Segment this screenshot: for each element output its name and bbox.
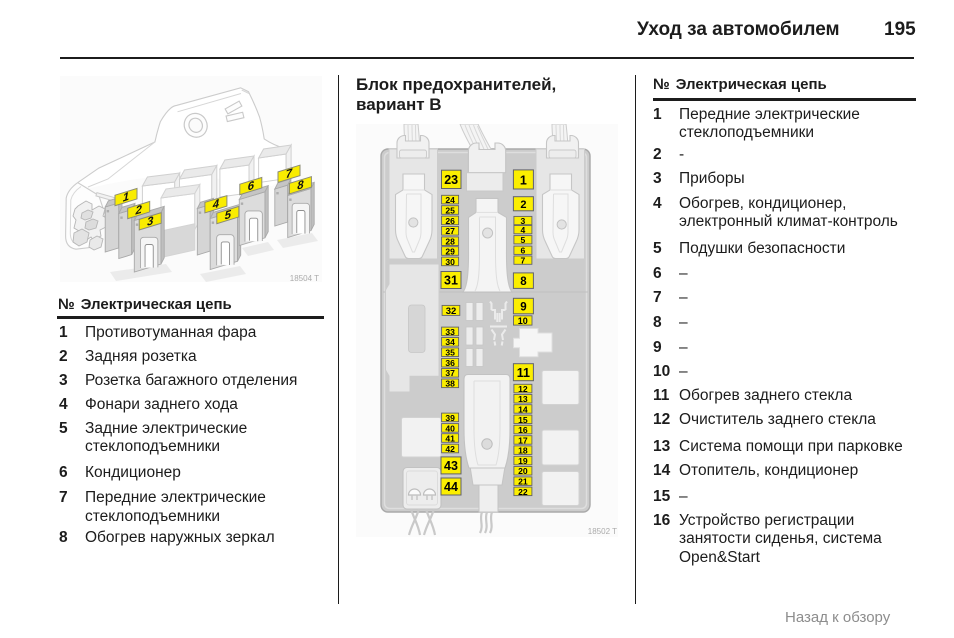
svg-text:5: 5 xyxy=(521,235,526,245)
svg-text:19: 19 xyxy=(518,456,528,466)
svg-text:16: 16 xyxy=(518,425,528,435)
svg-text:9: 9 xyxy=(520,302,526,314)
svg-text:25: 25 xyxy=(445,205,455,215)
svg-text:43: 43 xyxy=(444,459,458,473)
svg-text:2: 2 xyxy=(520,199,526,211)
svg-text:23: 23 xyxy=(444,173,458,187)
svg-text:1: 1 xyxy=(123,190,129,205)
svg-text:1: 1 xyxy=(520,173,527,187)
svg-text:31: 31 xyxy=(444,274,458,288)
svg-text:44: 44 xyxy=(444,480,458,494)
svg-text:7: 7 xyxy=(286,166,293,181)
svg-text:18504 T: 18504 T xyxy=(290,274,319,282)
svg-text:18502 T: 18502 T xyxy=(588,527,617,536)
svg-text:39: 39 xyxy=(445,413,455,423)
svg-text:15: 15 xyxy=(518,415,528,425)
svg-text:3: 3 xyxy=(147,214,154,229)
svg-text:33: 33 xyxy=(445,327,455,337)
svg-text:27: 27 xyxy=(445,226,455,236)
svg-text:4: 4 xyxy=(521,225,526,235)
svg-text:14: 14 xyxy=(518,404,528,414)
svg-text:35: 35 xyxy=(445,348,455,358)
svg-text:29: 29 xyxy=(445,246,455,256)
svg-text:13: 13 xyxy=(518,394,528,404)
svg-text:22: 22 xyxy=(518,487,528,497)
svg-text:28: 28 xyxy=(445,237,455,247)
svg-text:17: 17 xyxy=(518,435,528,445)
svg-text:8: 8 xyxy=(297,178,304,193)
svg-text:18: 18 xyxy=(518,446,528,456)
svg-text:36: 36 xyxy=(445,358,455,368)
svg-text:41: 41 xyxy=(445,433,455,443)
svg-text:26: 26 xyxy=(445,216,455,226)
svg-text:6: 6 xyxy=(248,179,255,194)
svg-text:12: 12 xyxy=(518,384,528,394)
svg-text:30: 30 xyxy=(445,257,455,267)
svg-text:37: 37 xyxy=(445,368,455,378)
svg-text:20: 20 xyxy=(518,466,528,476)
svg-text:21: 21 xyxy=(518,477,528,487)
svg-text:34: 34 xyxy=(445,337,455,347)
svg-text:6: 6 xyxy=(521,246,526,256)
svg-text:4: 4 xyxy=(212,197,220,212)
svg-text:11: 11 xyxy=(517,366,530,380)
svg-text:32: 32 xyxy=(446,306,457,317)
svg-text:42: 42 xyxy=(445,444,455,454)
svg-text:2: 2 xyxy=(135,203,143,218)
svg-text:40: 40 xyxy=(445,423,455,433)
svg-text:7: 7 xyxy=(521,256,526,266)
svg-text:24: 24 xyxy=(445,195,455,205)
svg-text:5: 5 xyxy=(225,208,232,223)
svg-text:38: 38 xyxy=(445,379,455,389)
svg-text:10: 10 xyxy=(518,316,528,326)
svg-text:8: 8 xyxy=(520,276,527,288)
